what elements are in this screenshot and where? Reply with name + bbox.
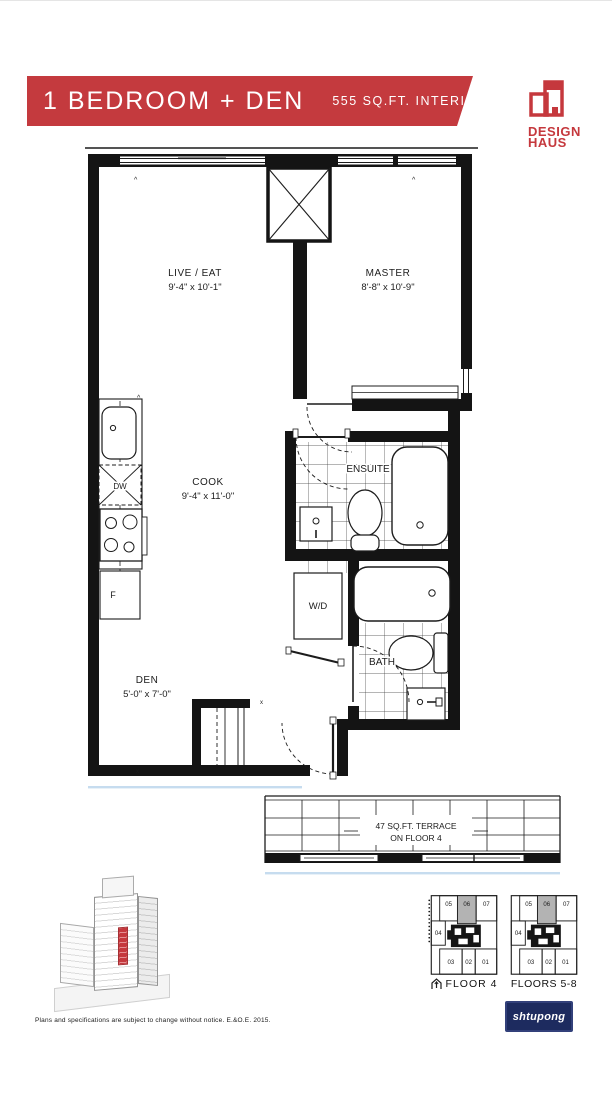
building-mech-box [102,876,134,899]
floor4-caption: FLOOR 4 [422,978,506,990]
svg-text:03: 03 [528,960,535,966]
ensuite-label: ENSUITE [346,464,390,475]
svg-text:05: 05 [525,902,532,908]
svg-text:x: x [260,700,263,706]
svg-text:05: 05 [445,902,452,908]
dishwasher-label: DW [113,482,127,491]
bath-room [353,567,450,720]
master-label: MASTER [366,268,411,279]
svg-text:02: 02 [545,960,552,966]
svg-text:^: ^ [134,177,138,184]
svg-text:02: 02 [465,960,472,966]
den-dims: 5'-0" x 7'-0" [123,689,171,700]
svg-text:^: ^ [412,177,416,184]
terrace-label-2: ON FLOOR 4 [390,833,442,843]
laundry-closet [286,561,348,666]
disclaimer-text: Plans and specifications are subject to … [35,1017,271,1024]
svg-text:x: x [136,769,139,775]
building-tower-side [138,896,158,986]
artifact-line-left [88,786,302,788]
svg-text:06: 06 [463,902,470,908]
column-shaft [268,168,330,241]
den-closet [217,708,244,765]
keyplate-floors5-8: 05 06 07 04 03 02 01 [506,891,582,977]
north-arrow-icon [431,978,442,990]
ensuite-room [293,429,448,551]
plan-title: 1 BEDROOM + DEN [43,87,304,116]
svg-text:07: 07 [483,902,490,908]
den-label: DEN [136,675,159,686]
terrace-label-1: 47 SQ.FT. TERRACE [375,821,456,831]
header-banner: 1 BEDROOM + DEN 555 SQ.FT. INTERIOR 1G+D… [27,76,473,126]
building-render [52,871,176,1013]
fridge-label: F [110,590,116,600]
laundry-label: W/D [309,601,328,612]
building-tower-front [94,893,138,991]
cook-label: COOK [192,477,223,488]
svg-text:07: 07 [563,902,570,908]
floors5-8-caption: FLOORS 5-8 [504,978,584,990]
interior-area: 555 SQ.FT. INTERIOR [332,94,487,108]
cook-dims: 9'-4" x 11'-0" [182,491,234,502]
design-haus-icon [528,79,568,119]
flyer-page: 1 BEDROOM + DEN 555 SQ.FT. INTERIOR 1G+D… [0,0,612,1097]
terrace-dots [428,900,430,943]
floor-plan: ^ ^ ^ x x [80,141,570,881]
floor4-label: FLOOR 4 [446,978,498,990]
design-haus-logo: DESIGN HAUS [528,79,590,148]
master-closet [352,386,458,399]
bath-label: BATH [369,657,395,668]
live-eat-label: LIVE / EAT [168,268,222,279]
svg-text:04: 04 [515,931,522,937]
unit-highlight-stack [118,927,128,966]
building-podium [60,923,94,987]
master-dims: 8'-8" x 10'-9" [361,282,414,293]
svg-text:04: 04 [435,931,442,937]
svg-text:01: 01 [562,960,569,966]
kitchen [99,399,147,619]
svg-text:06: 06 [543,902,550,908]
live-eat-dims: 9'-4" x 10'-1" [168,282,221,293]
watermark-text: shtupong [513,1011,566,1023]
artifact-line-right [265,872,560,874]
watermark-logo: shtupong [505,1001,573,1032]
keyplate-floor4: 05 06 07 04 03 02 01 [426,891,502,977]
svg-text:01: 01 [482,960,489,966]
svg-text:03: 03 [448,960,455,966]
